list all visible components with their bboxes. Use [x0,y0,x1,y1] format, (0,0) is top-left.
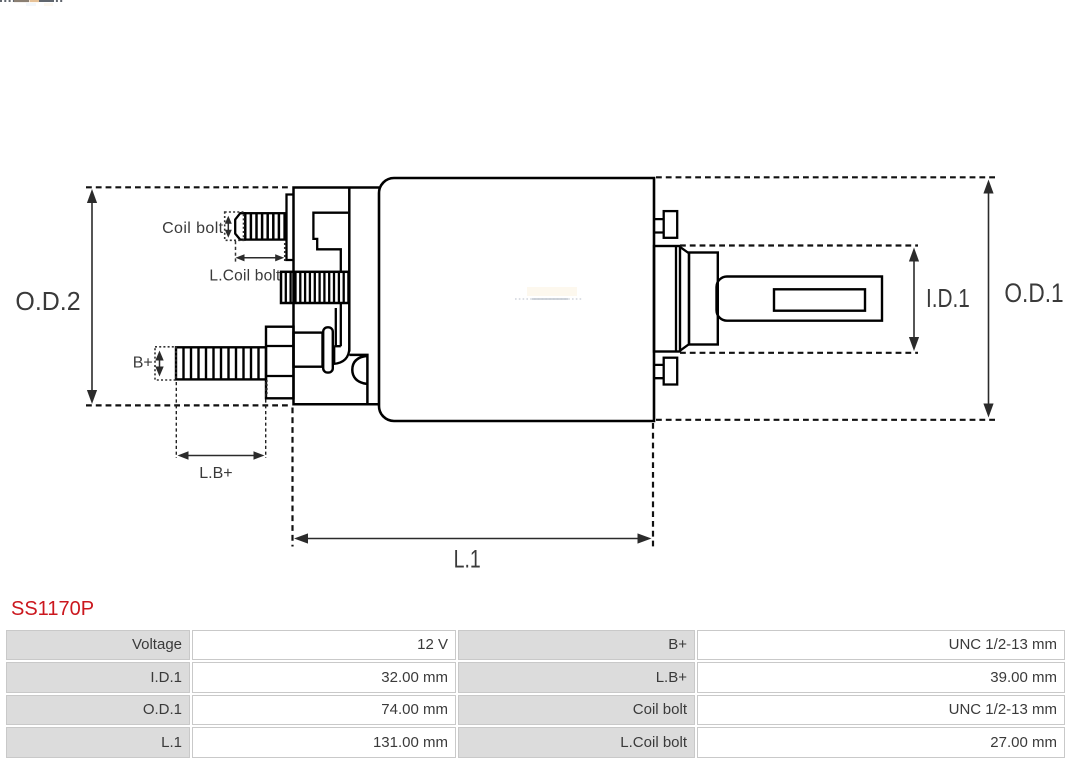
svg-text:L.1: L.1 [454,545,481,573]
svg-text:L.B+: L.B+ [199,465,232,482]
svg-text:L.Coil bolt: L.Coil bolt [209,268,281,285]
svg-text:I.D.1: I.D.1 [926,284,970,313]
svg-text:B+: B+ [133,355,153,372]
svg-text:O.D.2: O.D.2 [15,288,80,317]
svg-text:O.D.1: O.D.1 [1004,278,1063,308]
svg-text:Coil bolt: Coil bolt [162,220,224,237]
